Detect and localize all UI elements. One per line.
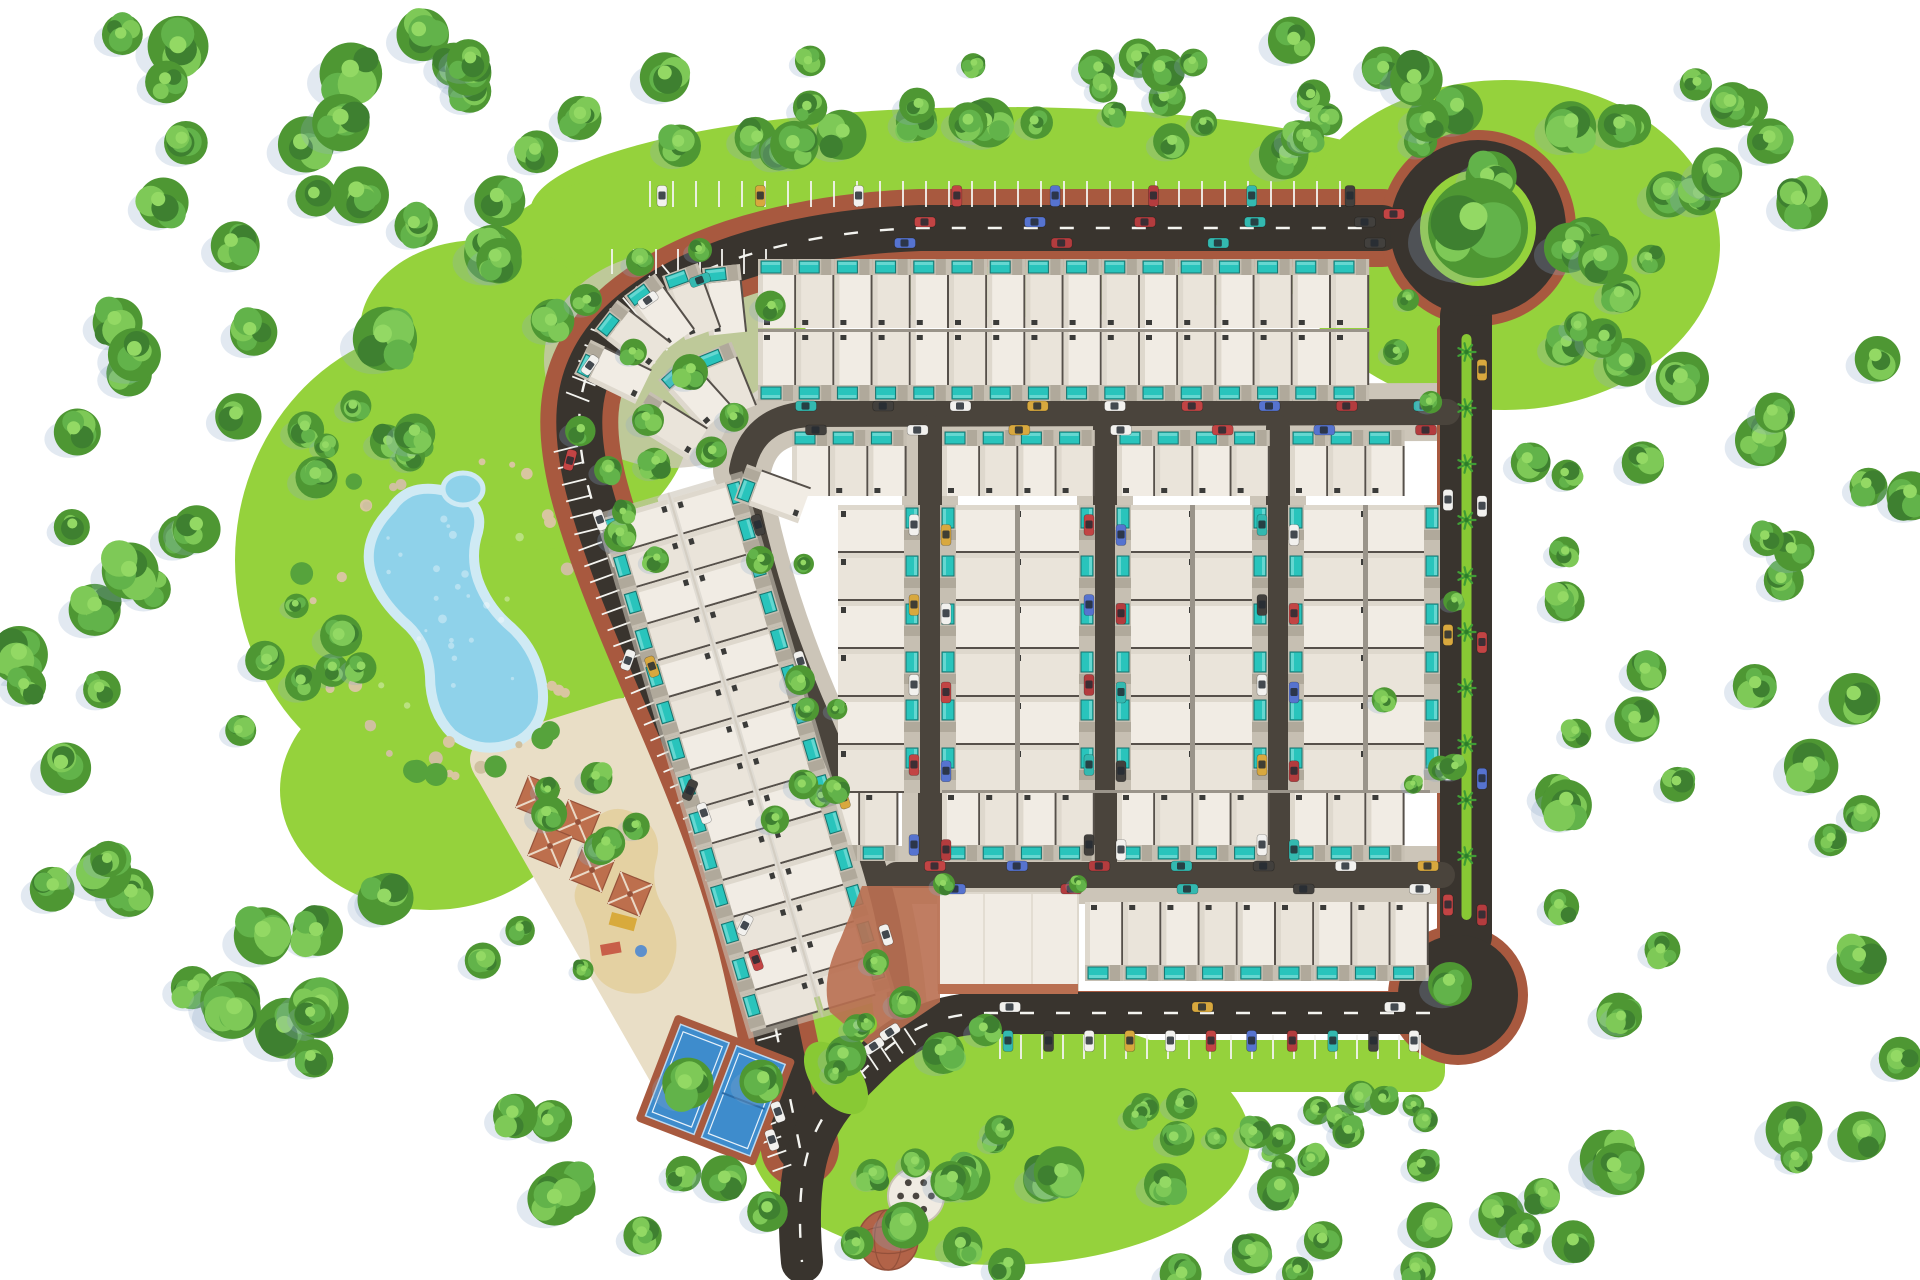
car xyxy=(1355,217,1376,227)
tree-highlight xyxy=(296,674,306,684)
tree-highlight xyxy=(1561,546,1569,554)
car xyxy=(1289,682,1299,703)
car-glass xyxy=(1095,862,1103,869)
car-glass xyxy=(910,521,917,529)
tree-foliage xyxy=(961,1246,976,1261)
clubhouse xyxy=(938,893,1078,990)
pond xyxy=(443,473,483,505)
car xyxy=(1477,496,1487,517)
car xyxy=(1477,360,1487,381)
ac-unit xyxy=(1334,795,1340,800)
tree-highlight xyxy=(761,1201,772,1212)
ac-unit xyxy=(1031,320,1037,325)
pool-ripple xyxy=(1318,975,1336,978)
roof-gap xyxy=(838,551,904,553)
house-roof xyxy=(1216,332,1253,385)
house-roof xyxy=(796,275,833,328)
roof-shade xyxy=(1064,275,1069,328)
house-roof xyxy=(911,275,948,328)
row-c-1 xyxy=(792,430,907,496)
palm-trunk xyxy=(1464,742,1468,746)
car-glass xyxy=(956,402,964,409)
bottom-upper-2 xyxy=(942,792,1095,861)
tree-highlight xyxy=(1869,348,1882,361)
roof-shade xyxy=(1155,792,1160,845)
car xyxy=(1287,1031,1297,1052)
driveway xyxy=(1288,722,1304,732)
roof-gap xyxy=(1198,902,1200,965)
car xyxy=(1410,884,1431,894)
car-glass xyxy=(1117,426,1125,433)
pool-ripple xyxy=(1291,557,1294,575)
house-roof xyxy=(911,332,948,385)
tree-highlight xyxy=(341,60,359,78)
ac-unit xyxy=(874,488,880,493)
roof-gap xyxy=(1013,551,1079,553)
roof-shade xyxy=(987,275,992,328)
tree-highlight xyxy=(1393,347,1400,354)
pool-ripple xyxy=(1291,653,1294,671)
col-1278-east xyxy=(1288,505,1370,793)
roof-gap xyxy=(956,551,1022,553)
driveway xyxy=(1416,965,1426,981)
house-roof xyxy=(1328,446,1365,496)
car xyxy=(854,186,864,207)
ac-unit xyxy=(802,335,808,340)
lake-ripple xyxy=(452,655,458,661)
ac-unit xyxy=(1070,320,1076,325)
driveway xyxy=(1050,385,1060,401)
tree-highlight xyxy=(729,412,737,420)
pool-ripple xyxy=(1118,653,1121,671)
tree-highlight xyxy=(1293,1265,1302,1274)
site-plan-rendering xyxy=(0,0,1920,1280)
car-glass xyxy=(1218,426,1226,433)
car xyxy=(925,861,946,871)
lake-ripple xyxy=(398,553,402,557)
pool-ripple xyxy=(984,855,1002,858)
driveway xyxy=(1165,385,1175,401)
car-glass xyxy=(1258,521,1265,529)
car xyxy=(1384,209,1405,219)
pool-ripple xyxy=(877,262,895,265)
car-glass xyxy=(1370,1037,1377,1045)
shrub xyxy=(363,501,372,510)
tree-highlight xyxy=(1422,1115,1429,1122)
roof-shade xyxy=(1186,745,1252,750)
tree-highlight xyxy=(1451,597,1457,603)
driveway xyxy=(1203,385,1213,401)
house-roof xyxy=(873,275,910,328)
pool-ripple xyxy=(838,262,856,265)
car-glass xyxy=(1329,1037,1336,1045)
tree-highlight xyxy=(708,445,717,454)
house-roof xyxy=(949,275,986,328)
roof-gap xyxy=(871,332,873,385)
driveway xyxy=(1424,722,1440,732)
house-roof xyxy=(1186,745,1252,791)
pool-ripple xyxy=(1297,262,1315,265)
lake-ripple xyxy=(433,565,440,572)
tree-foliage xyxy=(1561,907,1577,923)
ac-unit xyxy=(1358,905,1364,910)
car-glass xyxy=(931,862,939,869)
driveway xyxy=(855,430,865,446)
tree-foliage xyxy=(1664,950,1677,963)
tree-highlight xyxy=(1108,108,1115,115)
tree-highlight xyxy=(18,678,29,689)
driveway xyxy=(1353,845,1363,861)
ac-unit xyxy=(1261,335,1267,340)
pool-ripple xyxy=(864,855,882,858)
tree-highlight xyxy=(1451,762,1458,769)
house-roof xyxy=(1331,275,1368,328)
tree-highlight xyxy=(374,325,392,343)
tree-highlight xyxy=(309,467,321,479)
tree-highlight xyxy=(1410,1101,1416,1107)
pool-ripple xyxy=(1434,701,1437,719)
driveway xyxy=(898,259,908,275)
driveway xyxy=(1391,845,1401,861)
roof-shade xyxy=(1013,745,1079,750)
roof-shade xyxy=(838,601,904,606)
tree-highlight xyxy=(1093,61,1103,71)
driveway xyxy=(940,578,956,588)
ac-unit xyxy=(1070,335,1076,340)
roof-gap xyxy=(956,647,1022,649)
car-glass xyxy=(1290,688,1297,696)
roof-shade xyxy=(1193,446,1198,496)
car xyxy=(1335,861,1356,871)
roof-gap xyxy=(1214,275,1216,328)
car-glass xyxy=(910,761,917,769)
car xyxy=(1116,682,1126,703)
car xyxy=(1385,1002,1406,1012)
ac-unit xyxy=(1337,320,1343,325)
lake-ripple xyxy=(449,531,457,539)
pool-ripple xyxy=(991,262,1009,265)
dome-apex xyxy=(913,1193,920,1200)
car-glass xyxy=(942,531,949,539)
tree-highlight xyxy=(1763,130,1776,143)
tree-highlight xyxy=(1132,1111,1139,1118)
tree-foliage xyxy=(1522,1232,1535,1245)
tree-highlight xyxy=(357,661,366,670)
tree-highlight xyxy=(489,249,502,262)
house-roof xyxy=(1238,902,1275,965)
tree-highlight xyxy=(255,921,271,937)
driveway xyxy=(1288,578,1304,588)
bush xyxy=(484,755,506,777)
tree-highlight xyxy=(490,188,504,202)
ac-unit xyxy=(1024,488,1030,493)
tree-highlight xyxy=(333,109,349,125)
shrub xyxy=(337,572,347,582)
car xyxy=(1084,515,1094,536)
house-roof xyxy=(1140,332,1177,385)
house-roof xyxy=(1186,697,1252,743)
roof-gap xyxy=(828,446,830,496)
roof-gap xyxy=(1191,792,1193,845)
tree-highlight xyxy=(542,1114,554,1126)
house-roof xyxy=(1117,792,1154,845)
ac-unit xyxy=(1031,335,1037,340)
car-glass xyxy=(1117,846,1124,854)
pool-ripple xyxy=(1395,975,1413,978)
palm-trunk xyxy=(1464,350,1468,354)
top-row-a xyxy=(758,259,1369,328)
tree-highlight xyxy=(1672,776,1682,786)
tree-highlight xyxy=(1245,1244,1256,1255)
pool-ripple xyxy=(1068,262,1086,265)
roof-gap xyxy=(1403,792,1405,845)
roof-shade xyxy=(1328,792,1333,845)
car xyxy=(1135,217,1156,227)
roof-gap xyxy=(1121,902,1123,965)
car xyxy=(1247,186,1257,207)
tree-highlight xyxy=(1410,780,1415,785)
tree-highlight xyxy=(1574,321,1582,329)
roof-shade xyxy=(956,553,1022,558)
pool-ripple xyxy=(1335,395,1353,398)
lake-ripple xyxy=(386,570,390,574)
car xyxy=(1477,905,1487,926)
tree-highlight xyxy=(243,322,256,335)
roof-shade xyxy=(911,275,916,328)
tree-highlight xyxy=(46,878,59,891)
col-1278-west xyxy=(1186,505,1268,793)
tree-highlight xyxy=(1636,452,1648,464)
pool-ripple xyxy=(914,653,917,671)
tree-highlight xyxy=(322,441,329,448)
pool-ripple xyxy=(1294,433,1312,436)
roof-gap xyxy=(838,743,904,745)
roof-gap xyxy=(1364,446,1366,496)
tree-highlight xyxy=(1639,663,1650,674)
roof-shade xyxy=(1186,505,1252,510)
pool-ripple xyxy=(1127,975,1145,978)
car-glass xyxy=(1258,841,1265,849)
shrub xyxy=(542,509,554,521)
house-roof xyxy=(1290,792,1327,845)
top-row-b xyxy=(758,332,1369,401)
tree-highlight xyxy=(1459,202,1487,230)
tree-highlight xyxy=(1030,115,1039,124)
shrub xyxy=(515,741,522,748)
car-glass xyxy=(942,846,949,854)
bottom-upper-3 xyxy=(1117,792,1270,861)
pool-ripple xyxy=(1434,605,1437,623)
tree-highlight xyxy=(786,135,800,149)
house-roof xyxy=(838,601,904,647)
roof-gap xyxy=(832,275,834,328)
lake-ripple xyxy=(455,584,461,590)
roof-shade xyxy=(1161,902,1166,965)
car-glass xyxy=(1188,402,1196,409)
ac-unit xyxy=(1320,905,1326,910)
tree-highlight xyxy=(581,966,587,972)
pool-ripple xyxy=(953,262,971,265)
ac-unit xyxy=(841,511,846,517)
driveway xyxy=(1142,430,1152,446)
house-roof xyxy=(956,697,1022,743)
tree-highlight xyxy=(979,1022,988,1031)
car-glass xyxy=(942,688,949,696)
car xyxy=(1116,525,1126,546)
tree-highlight xyxy=(1857,1124,1871,1138)
house-roof xyxy=(873,332,910,385)
car xyxy=(909,515,919,536)
tree-highlight xyxy=(229,407,242,420)
row-c-3 xyxy=(1117,430,1270,496)
car xyxy=(909,835,919,856)
tree-foliage xyxy=(1858,1136,1879,1157)
car-glass xyxy=(1265,402,1273,409)
driveway xyxy=(1339,965,1349,981)
col-villas-east xyxy=(1358,505,1440,793)
pool-ripple xyxy=(1165,975,1183,978)
pool-ripple xyxy=(1144,262,1162,265)
tree-highlight xyxy=(802,101,812,111)
row-c-4 xyxy=(1290,430,1405,496)
tree-highlight xyxy=(547,1189,562,1204)
driveway xyxy=(1186,965,1196,981)
tree-highlight xyxy=(1076,880,1081,885)
pool-ripple xyxy=(1089,557,1092,575)
car-glass xyxy=(1117,531,1124,539)
house-roof xyxy=(834,332,871,385)
tree-highlight xyxy=(804,705,811,712)
tree-highlight xyxy=(261,654,272,665)
tree-highlight xyxy=(771,813,779,821)
roof-gap xyxy=(1013,647,1079,649)
house-roof xyxy=(860,792,897,845)
lake-ripple xyxy=(511,677,514,680)
car-glass xyxy=(1444,901,1451,909)
car xyxy=(1212,425,1233,435)
tree-highlight xyxy=(1003,1257,1013,1267)
car-glass xyxy=(901,239,909,246)
tree-highlight xyxy=(832,706,838,712)
driveway xyxy=(1218,845,1228,861)
car-glass xyxy=(1290,767,1297,775)
car-glass xyxy=(1341,862,1349,869)
roof-gap xyxy=(1291,332,1293,385)
roof-gap xyxy=(1186,695,1252,697)
tree-highlight xyxy=(464,51,476,63)
bush xyxy=(290,562,313,585)
car-glass xyxy=(1258,601,1265,609)
tree-highlight xyxy=(1803,756,1818,771)
tree-foliage xyxy=(301,429,315,443)
tree-highlight xyxy=(169,36,186,53)
roof-shade xyxy=(1057,792,1062,845)
pool-ripple xyxy=(1159,855,1177,858)
house-roof xyxy=(834,275,871,328)
roof-shade xyxy=(1255,275,1260,328)
lake-ripple xyxy=(386,536,389,539)
car xyxy=(1125,1031,1135,1052)
house-roof xyxy=(1018,792,1055,845)
house-roof xyxy=(987,332,1024,385)
roof-gap xyxy=(909,332,911,385)
house-roof xyxy=(956,505,1022,551)
car xyxy=(1257,515,1267,536)
tree-highlight xyxy=(1410,1262,1420,1272)
pool-ripple xyxy=(1297,395,1315,398)
roof-gap xyxy=(794,275,796,328)
roof-gap xyxy=(1312,902,1314,965)
driveway xyxy=(974,385,984,401)
car-glass xyxy=(1086,1037,1093,1045)
tree-highlight xyxy=(800,560,806,566)
ac-unit xyxy=(1108,320,1114,325)
roof-gap xyxy=(1364,792,1366,845)
tree-highlight xyxy=(1616,1010,1626,1020)
dome-window xyxy=(897,1193,904,1200)
driveway xyxy=(1079,578,1095,588)
tree-highlight xyxy=(996,1123,1004,1131)
tree-highlight xyxy=(675,1167,685,1177)
car-glass xyxy=(1045,1037,1052,1045)
roof-shade xyxy=(1102,332,1107,385)
house-roof xyxy=(1186,505,1252,551)
car-glass xyxy=(942,767,949,775)
ac-unit xyxy=(1334,488,1340,493)
house-roof xyxy=(1391,902,1428,965)
tree-highlight xyxy=(767,301,776,310)
ac-unit xyxy=(1063,795,1069,800)
tree-highlight xyxy=(102,853,112,863)
tree-highlight xyxy=(798,779,806,787)
car xyxy=(755,186,765,207)
car xyxy=(1257,675,1267,696)
tree-highlight xyxy=(1613,116,1625,128)
roof-gap xyxy=(1230,792,1232,845)
roof-shade xyxy=(956,745,1022,750)
roof-shade xyxy=(980,792,985,845)
car xyxy=(1003,1031,1013,1052)
driveway xyxy=(1391,430,1401,446)
ac-unit xyxy=(993,320,999,325)
car-glass xyxy=(1478,774,1485,782)
house-roof xyxy=(956,649,1022,695)
driveway xyxy=(1043,845,1053,861)
roof-gap xyxy=(838,695,904,697)
roof-gap xyxy=(1186,743,1252,745)
tree-highlight xyxy=(1655,943,1665,953)
car-glass xyxy=(1013,862,1021,869)
house-roof xyxy=(1290,446,1327,496)
driveway xyxy=(1356,259,1366,275)
roof-gap xyxy=(1153,792,1155,845)
house-roof xyxy=(1117,446,1154,496)
car-glass xyxy=(1207,1037,1214,1045)
car-glass xyxy=(913,426,921,433)
car xyxy=(895,238,916,248)
tree-highlight xyxy=(1760,530,1770,540)
house-roof xyxy=(1276,902,1313,965)
car xyxy=(1289,603,1299,624)
car-glass xyxy=(1085,601,1092,609)
tree-highlight xyxy=(67,421,80,434)
ac-unit xyxy=(1238,488,1244,493)
house-roof xyxy=(1331,332,1368,385)
ac-unit xyxy=(1372,488,1378,493)
tree-highlight xyxy=(1891,1050,1903,1062)
palm-trunk xyxy=(1464,630,1468,634)
tree-highlight xyxy=(1846,686,1860,700)
